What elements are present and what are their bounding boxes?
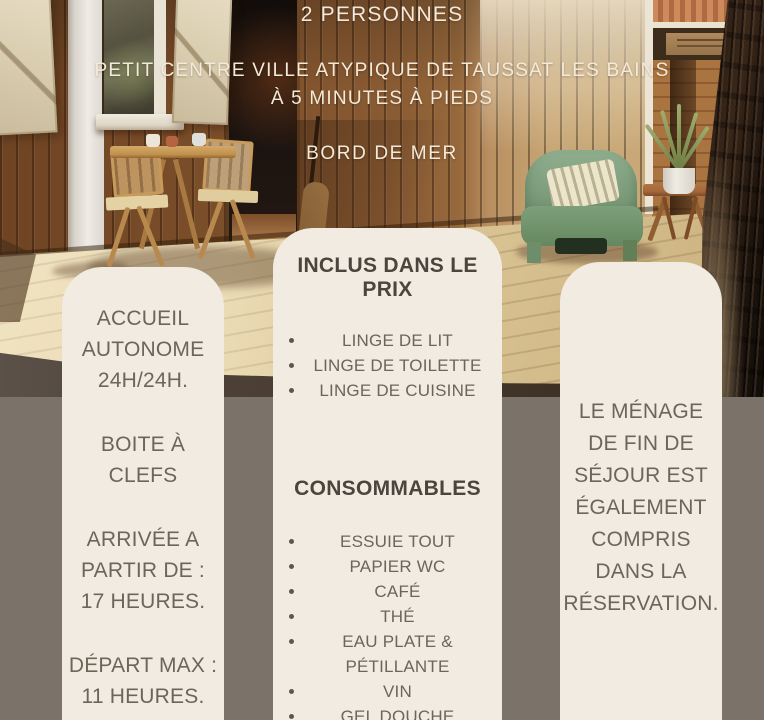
seaside-headline: BORD DE MER: [0, 143, 764, 165]
included-heading: INCLUS DANS LE PRIX: [273, 254, 502, 302]
checkin-info-card: ACCUEIL AUTONOME 24H/24H. BOITE À CLEFS …: [62, 267, 224, 720]
capacity-headline: 2 PERSONNES: [0, 3, 764, 27]
list-item: THÉ: [273, 604, 502, 629]
armchair-underside: [555, 238, 607, 254]
included-items-card: INCLUS DANS LE PRIX LINGE DE LIT LINGE D…: [273, 228, 502, 720]
folding-chair-right-seat: [198, 189, 258, 203]
location-headline-line2: À 5 MINUTES À PIEDS: [0, 88, 764, 110]
armchair-leg: [527, 242, 541, 263]
self-checkin-text: ACCUEIL AUTONOME 24H/24H.: [62, 303, 224, 396]
list-item: LINGE DE LIT: [273, 328, 502, 353]
consumables-heading: CONSOMMABLES: [273, 477, 502, 501]
armchair-leg: [623, 240, 637, 261]
white-porch-post: [68, 0, 104, 266]
list-item: EAU PLATE & PÉTILLANTE: [273, 629, 502, 679]
side-table-leg: [684, 196, 699, 240]
departure-time-text: DÉPART MAX : 11 HEURES.: [62, 650, 224, 712]
side-table-leg: [662, 196, 677, 240]
cleaning-info-card: LE MÉNAGE DE FIN DE SÉJOUR EST ÉGALEMENT…: [560, 262, 722, 720]
key-box-text: BOITE À CLEFS: [62, 429, 224, 491]
plant-pot: [663, 168, 695, 194]
list-item: PAPIER WC: [273, 554, 502, 579]
list-item: LINGE DE CUISINE: [273, 378, 502, 403]
list-item: ESSUIE TOUT: [273, 529, 502, 554]
consumables-list: ESSUIE TOUT PAPIER WC CAFÉ THÉ EAU PLATE…: [273, 529, 502, 720]
list-item: CAFÉ: [273, 579, 502, 604]
list-item: LINGE DE TOILETTE: [273, 353, 502, 378]
cleaning-included-text: LE MÉNAGE DE FIN DE SÉJOUR EST ÉGALEMENT…: [560, 396, 722, 620]
arrival-time-text: ARRIVÉE A PARTIR DE : 17 HEURES.: [62, 524, 224, 617]
list-item: GEL DOUCHE: [273, 704, 502, 720]
rental-flyer: 2 PERSONNES PETIT CENTRE VILLE ATYPIQUE …: [0, 0, 764, 720]
location-headline-line1: PETIT CENTRE VILLE ATYPIQUE DE TAUSSAT L…: [0, 60, 764, 82]
green-armchair: [515, 148, 650, 263]
list-item: VIN: [273, 679, 502, 704]
included-list: LINGE DE LIT LINGE DE TOILETTE LINGE DE …: [273, 328, 502, 403]
